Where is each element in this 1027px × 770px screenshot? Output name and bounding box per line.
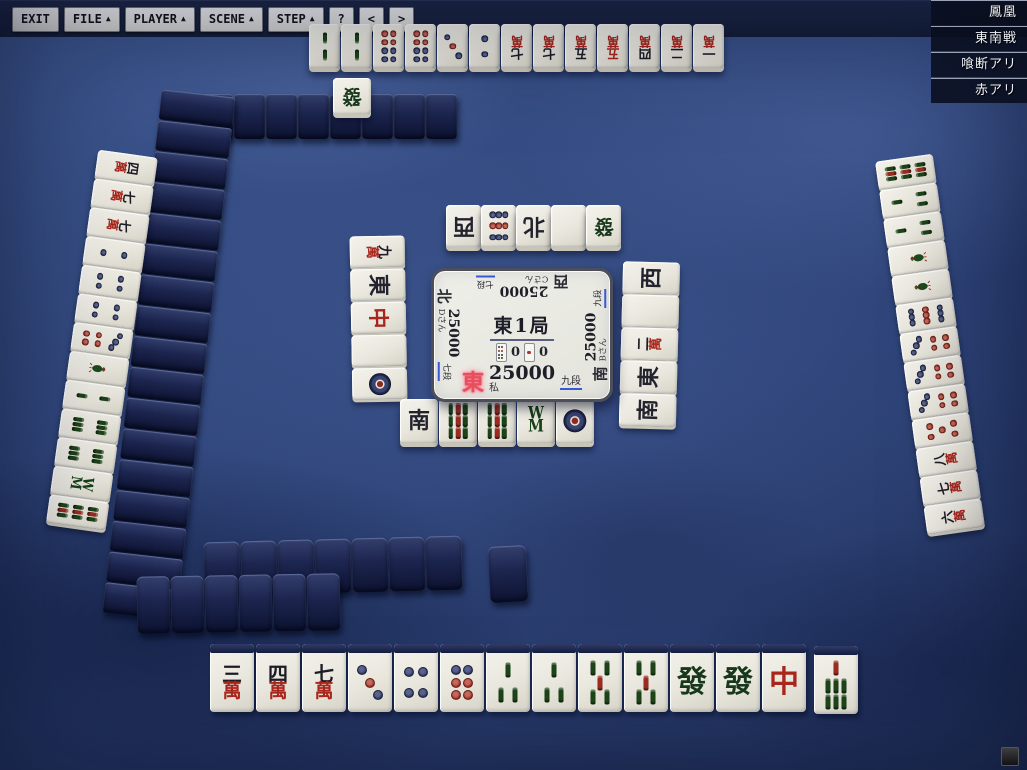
discard-tile-9s bbox=[439, 399, 477, 443]
thousand-point-stick-icon bbox=[524, 343, 535, 362]
discard-tile-H bbox=[621, 294, 679, 327]
wall-back-tile bbox=[388, 537, 425, 592]
discard-tile-H bbox=[351, 335, 407, 367]
hand-tile-2p bbox=[469, 24, 500, 68]
discards-top-player: 西北發 bbox=[446, 205, 621, 247]
tile-glyph: 二萬 bbox=[636, 337, 663, 352]
drawn-tile-7s[interactable] bbox=[814, 646, 858, 714]
hand-tile-5mR: 五萬 bbox=[597, 24, 628, 68]
hand-tile-F[interactable]: 發 bbox=[716, 644, 760, 712]
score-left: 25000 bbox=[446, 309, 460, 358]
tile-glyph: 七萬 bbox=[105, 217, 131, 233]
rule-item-lobby: 鳳凰 bbox=[931, 0, 1027, 25]
tile-glyph: 西 bbox=[453, 215, 475, 237]
wall-back-tile bbox=[171, 576, 205, 634]
tile-glyph: 中 bbox=[368, 307, 389, 328]
drawn-tile[interactable] bbox=[814, 646, 858, 714]
tile-glyph: 七萬 bbox=[937, 479, 963, 495]
player-menu-button[interactable]: PLAYER▲ bbox=[125, 7, 195, 32]
tile-glyph: 六萬 bbox=[941, 508, 967, 524]
exit-button[interactable]: EXIT bbox=[12, 7, 59, 32]
discard-tile-9p bbox=[481, 205, 516, 247]
discard-tile-W: 西 bbox=[446, 205, 481, 247]
wall-back-tile bbox=[394, 94, 425, 139]
tile-glyph: 五萬 bbox=[606, 34, 619, 58]
hand-tile-7m: 七萬 bbox=[501, 24, 532, 68]
discards-self: 南WM bbox=[400, 399, 594, 443]
tile-glyph: 發 bbox=[677, 668, 707, 698]
tile-glyph: 七萬 bbox=[109, 188, 135, 204]
discard-tile-1p bbox=[556, 399, 594, 443]
hand-top-player: 七萬七萬五萬五萬四萬二萬一萬 bbox=[309, 24, 724, 68]
discard-tile-F: 發 bbox=[586, 205, 621, 247]
hand-tile-8p bbox=[373, 24, 404, 68]
discard-tile-S: 南 bbox=[619, 393, 677, 426]
hand-right-player: 八萬七萬六萬 bbox=[875, 154, 985, 534]
honba-count: 0 bbox=[511, 345, 520, 360]
tile-glyph: 西 bbox=[640, 267, 663, 290]
tile-glyph: 南 bbox=[408, 410, 430, 432]
hand-tile-1m: 一萬 bbox=[693, 24, 724, 68]
hand-tile-4p[interactable] bbox=[394, 644, 438, 712]
menu-arrow-icon: ▲ bbox=[106, 15, 111, 23]
discard-tile-2m: 二萬 bbox=[621, 327, 679, 360]
tile-glyph: 九萬 bbox=[364, 244, 390, 258]
riichi-stick-count: 0 bbox=[539, 345, 548, 360]
menu-arrow-icon: ▲ bbox=[310, 15, 315, 23]
wall-top bbox=[202, 94, 457, 139]
discards-right-player: 西二萬東南 bbox=[619, 261, 680, 426]
wall-back-tile bbox=[234, 94, 265, 139]
discard-tile-E: 東 bbox=[350, 269, 406, 301]
discard-tile-C: 中 bbox=[351, 302, 407, 334]
rank-left: 七段 bbox=[438, 362, 450, 381]
tile-glyph: 二萬 bbox=[670, 34, 683, 58]
tile-glyph: 南 bbox=[636, 399, 659, 422]
tile-glyph: 發 bbox=[594, 216, 614, 236]
wall-back-tile bbox=[488, 545, 529, 603]
wall-bottom-front bbox=[137, 573, 341, 634]
wall-back-tile bbox=[306, 573, 340, 631]
name-top: Cさん bbox=[525, 274, 549, 283]
discard-tile-H bbox=[551, 205, 586, 247]
score-self: 25000 bbox=[489, 364, 555, 383]
player-info-top: 西 25000 Cさん 七段 bbox=[434, 274, 610, 298]
tile-glyph: 中 bbox=[769, 668, 799, 698]
hand-tile-2s bbox=[341, 24, 372, 68]
menu-arrow-icon: ▲ bbox=[181, 15, 186, 23]
wall-back-tile bbox=[239, 574, 273, 632]
hand-self[interactable]: 三萬四萬七萬發發中 bbox=[210, 644, 806, 712]
hand-tile-6p[interactable] bbox=[440, 644, 484, 712]
rule-item-match-type: 東南戦 bbox=[931, 26, 1027, 51]
scene-menu-button[interactable]: SCENE▲ bbox=[200, 7, 263, 32]
tile-glyph: 一萬 bbox=[702, 34, 715, 58]
hand-tile-4m[interactable]: 四萬 bbox=[256, 644, 300, 712]
wall-back-tile bbox=[205, 575, 239, 633]
discard-tile-N: 北 bbox=[516, 205, 551, 247]
tile-glyph: 七萬 bbox=[314, 664, 334, 701]
hand-tile-F[interactable]: 發 bbox=[670, 644, 714, 712]
dora-indicator: 發 bbox=[333, 78, 371, 114]
file-menu-button[interactable]: FILE▲ bbox=[64, 7, 120, 32]
center-info-panel: 東1局 0 0 東 25000 私 九段 南 25000 Bさん 九段 西 bbox=[431, 268, 613, 402]
hand-tile-5s[interactable] bbox=[624, 644, 668, 712]
tile-glyph: 東 bbox=[637, 366, 660, 389]
hundred-point-stick-icon bbox=[496, 343, 507, 362]
hand-tile-4m: 四萬 bbox=[629, 24, 660, 68]
rank-top: 七段 bbox=[476, 276, 495, 288]
tile-glyph: 八萬 bbox=[933, 451, 959, 467]
discard-tile-S: 南 bbox=[400, 399, 438, 443]
hand-tile-2m: 二萬 bbox=[661, 24, 692, 68]
wall-back-tile bbox=[425, 536, 462, 591]
round-indicator: 東1局 bbox=[490, 311, 553, 341]
rule-item-red-fives: 赤アリ bbox=[931, 78, 1027, 103]
wall-bottom-lone-tile bbox=[488, 545, 529, 603]
tile-glyph: 五萬 bbox=[574, 34, 587, 58]
discard-tile-8s: WM bbox=[517, 399, 555, 443]
discard-tile-W: 西 bbox=[622, 261, 680, 294]
hand-tile-3p[interactable] bbox=[348, 644, 392, 712]
rule-item-open-tanyao: 喰断アリ bbox=[931, 52, 1027, 77]
rules-panel: 鳳凰 東南戦 喰断アリ 赤アリ bbox=[931, 0, 1027, 104]
hand-tile-5s[interactable] bbox=[578, 644, 622, 712]
seat-wind-left: 北 bbox=[436, 289, 451, 304]
tile-glyph: 北 bbox=[523, 215, 545, 237]
tile-glyph: 七萬 bbox=[510, 34, 523, 58]
seat-wind-top: 西 bbox=[553, 274, 568, 289]
tile-glyph: 三萬 bbox=[222, 664, 242, 701]
discards-left-player: 九萬東中 bbox=[350, 236, 408, 400]
name-right: Bさん bbox=[599, 338, 608, 361]
score-top: 25000 bbox=[500, 284, 549, 298]
corner-box bbox=[1001, 747, 1019, 766]
dora-tile-F: 發 bbox=[333, 78, 371, 114]
tile-glyph: 四萬 bbox=[268, 664, 288, 701]
tile-glyph: 發 bbox=[723, 668, 753, 698]
seat-wind-right: 南 bbox=[593, 366, 608, 381]
player-info-left: 北 25000 Dさん 七段 bbox=[436, 276, 460, 394]
tile-glyph: 東 bbox=[367, 273, 389, 295]
discard-tile-1p bbox=[352, 368, 408, 400]
mahjong-table: 鳳凰 東南戦 喰断アリ 赤アリ 發 七萬七萬五萬五萬四萬二萬一萬 四萬七萬七萬W… bbox=[0, 0, 1027, 770]
name-left: Dさん bbox=[436, 309, 445, 333]
hand-tile-C[interactable]: 中 bbox=[762, 644, 806, 712]
hand-tile-7m[interactable]: 七萬 bbox=[302, 644, 346, 712]
seat-wind-self: 東 bbox=[462, 372, 484, 394]
hand-tile-2s bbox=[309, 24, 340, 68]
wall-back-tile bbox=[351, 538, 388, 593]
tile-glyph: 四萬 bbox=[113, 160, 139, 176]
hand-tile-5m: 五萬 bbox=[565, 24, 596, 68]
rank-self: 九段 bbox=[560, 377, 582, 390]
tile-glyph: WM bbox=[528, 408, 544, 434]
hand-tile-3s[interactable] bbox=[486, 644, 530, 712]
discard-tile-9m: 九萬 bbox=[350, 236, 406, 268]
wall-back-tile bbox=[137, 576, 171, 634]
hand-tile-3p bbox=[437, 24, 468, 68]
wall-back-tile bbox=[426, 94, 457, 139]
tile-glyph: 七萬 bbox=[542, 34, 555, 58]
wall-back-tile bbox=[266, 94, 297, 139]
wall-back-tile bbox=[272, 574, 306, 632]
hand-tile-8p bbox=[405, 24, 436, 68]
hand-tile-7m: 七萬 bbox=[533, 24, 564, 68]
tile-glyph: 四萬 bbox=[638, 34, 651, 58]
hand-tile-3m[interactable]: 三萬 bbox=[210, 644, 254, 712]
tile-glyph: 發 bbox=[342, 86, 362, 106]
wall-back-tile bbox=[298, 94, 329, 139]
menu-arrow-icon: ▲ bbox=[249, 15, 254, 23]
discard-tile-E: 東 bbox=[620, 360, 678, 393]
tile-glyph: WM bbox=[70, 475, 94, 492]
score-right: 25000 bbox=[584, 313, 598, 362]
name-self: 私 bbox=[489, 384, 499, 394]
hand-tile-3s[interactable] bbox=[532, 644, 576, 712]
discard-tile-9s bbox=[478, 399, 516, 443]
